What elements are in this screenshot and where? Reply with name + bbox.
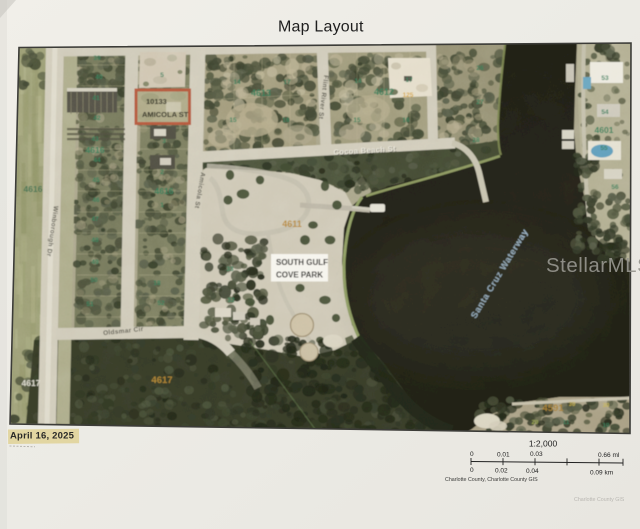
svg-text:0.04: 0.04 [526, 468, 539, 475]
svg-text:0.01: 0.01 [497, 452, 510, 459]
svg-text:Charlotte County GIS: Charlotte County GIS [574, 497, 625, 503]
svg-text:0.03: 0.03 [530, 451, 543, 458]
svg-text:Charlotte County, Charlotte Co: Charlotte County, Charlotte County GIS [445, 477, 538, 483]
svg-text:0.09 km: 0.09 km [590, 470, 613, 477]
svg-text:Map Layout: Map Layout [278, 19, 364, 36]
svg-text:1:2,000: 1:2,000 [529, 439, 558, 449]
svg-text:April 16, 2025: April 16, 2025 [10, 431, 75, 442]
svg-text:0.66 ml: 0.66 ml [598, 452, 620, 459]
svg-text:0.02: 0.02 [495, 468, 508, 475]
svg-text:0: 0 [470, 451, 474, 458]
svg-text:0: 0 [470, 467, 474, 474]
svg-text:StellarMLS: StellarMLS [546, 254, 640, 277]
